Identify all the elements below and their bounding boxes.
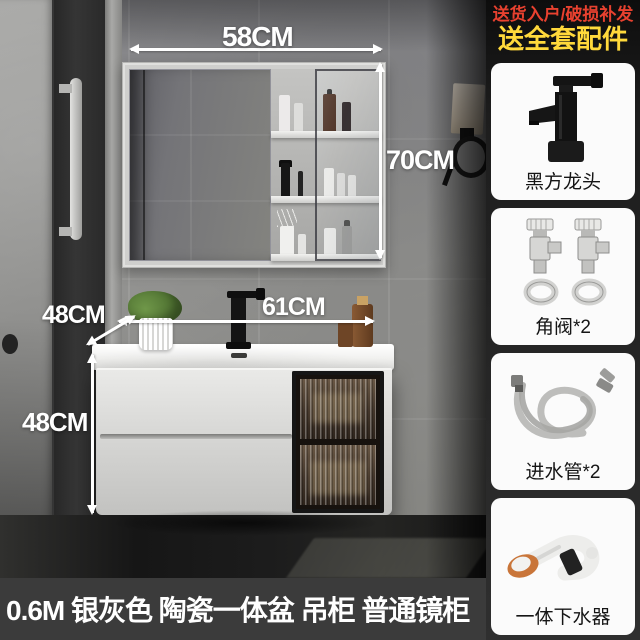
- promo-accessories-text: 送全套配件: [498, 25, 628, 55]
- dim-mirror-width-label: 58CM: [222, 21, 293, 53]
- mirror-cabinet: [122, 62, 386, 268]
- corner-shadow: [426, 0, 486, 578]
- razor: [281, 163, 290, 196]
- faucet-base: [226, 342, 251, 349]
- brush: [298, 171, 303, 196]
- accessory-card-inlet-hoses: 进水管*2: [491, 353, 635, 490]
- bottle: [298, 234, 306, 256]
- accessory-label: 角阀*2: [535, 318, 591, 339]
- accessory-card-drain: 一体下水器: [491, 498, 635, 635]
- dim-cabinet-height-label: 48CM: [22, 407, 87, 438]
- black-square-faucet-icon: [494, 66, 632, 173]
- mirror-door: [129, 69, 271, 261]
- accessory-label: 黑方龙头: [525, 173, 601, 194]
- mirror-reflection-line: [143, 70, 145, 260]
- bottle: [294, 103, 303, 131]
- promo-delivery-text: 送货入户/破损补发: [493, 6, 634, 25]
- product-image: 58CM 70CM 61CM 48CM 48CM 0.6M 银灰色 陶瓷一体盆 …: [0, 0, 640, 640]
- handle-mount: [59, 84, 72, 93]
- water-inlet-hoses-icon: [494, 356, 632, 463]
- cabinet-contents: [310, 461, 366, 495]
- cabinet-shadow: [110, 510, 380, 536]
- fluted-panel-top: [300, 379, 376, 439]
- mirror-cabinet-shelves: [271, 69, 381, 261]
- product-spec-text: 0.6M 银灰色 陶瓷一体盆 吊柜 普通镜柜: [6, 589, 469, 629]
- product-spec-banner: 0.6M 银灰色 陶瓷一体盆 吊柜 普通镜柜: [0, 578, 497, 640]
- dim-basin-width-arrow: [119, 320, 373, 323]
- accessories-sidebar: 送货入户/破损补发 送全套配件 黑方龙头: [486, 0, 640, 640]
- fluted-panel-bottom: [300, 445, 376, 505]
- diffuser-bottle: [280, 226, 294, 256]
- shower-door-handle: [70, 78, 82, 240]
- dim-basin-width-label: 61CM: [262, 293, 325, 322]
- accessory-label: 一体下水器: [515, 608, 610, 629]
- accessory-card-angle-valves: 角阀*2: [491, 208, 635, 345]
- dim-cabinet-height-arrow: [91, 355, 94, 513]
- dim-counter-depth-label: 48CM: [42, 301, 105, 330]
- bottle: [279, 95, 290, 131]
- diffuser-sticks: [277, 209, 297, 227]
- drawer-groove: [100, 434, 292, 439]
- accessory-card-faucet: 黑方龙头: [491, 63, 635, 200]
- wall-knob: [2, 334, 18, 354]
- integrated-drain-icon: [494, 501, 632, 608]
- angle-valves-icon: [494, 211, 632, 318]
- handle-mount: [59, 227, 72, 236]
- cabinet-contents: [312, 393, 362, 423]
- amber-bottle-cap: [357, 296, 368, 305]
- basin-overflow-hole: [231, 353, 247, 358]
- accessory-label: 进水管*2: [526, 463, 601, 484]
- dim-mirror-height-arrow: [379, 64, 382, 258]
- marble-wall-left: [0, 0, 52, 578]
- sliding-glass-door: [315, 69, 381, 261]
- fluted-glass-doors: [292, 371, 384, 513]
- amber-bottle-small: [338, 322, 353, 347]
- dim-mirror-height-label: 70CM: [386, 145, 454, 176]
